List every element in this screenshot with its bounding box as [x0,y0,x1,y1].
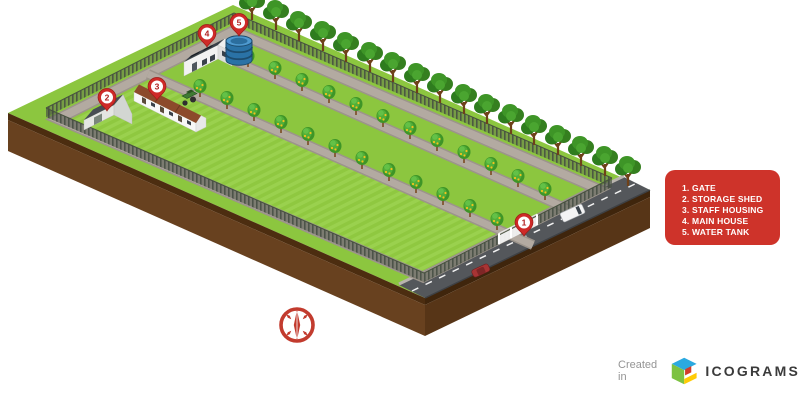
svg-text:4: 4 [205,28,210,38]
svg-text:1: 1 [522,217,527,227]
legend-item-gate: 1. GATE [682,183,774,194]
water-tank [226,36,252,65]
attribution: Created in ICOGRAMS [618,351,800,391]
icograms-logo-icon[interactable] [670,354,698,388]
svg-text:3: 3 [155,81,160,91]
legend-item-main-house: 4. MAIN HOUSE [682,216,774,227]
legend-item-storage-shed: 2. STORAGE SHED [682,194,774,205]
svg-text:5: 5 [237,17,242,27]
legend-item-staff-housing: 3. STAFF HOUSING [682,205,774,216]
legend-item-water-tank: 5. WATER TANK [682,227,774,238]
legend-panel: 1. GATE 2. STORAGE SHED 3. STAFF HOUSING… [665,170,780,245]
brand-name[interactable]: ICOGRAMS [705,363,800,379]
compass-icon [281,309,313,341]
created-in-label: Created in [618,359,663,383]
svg-text:2: 2 [105,92,110,102]
